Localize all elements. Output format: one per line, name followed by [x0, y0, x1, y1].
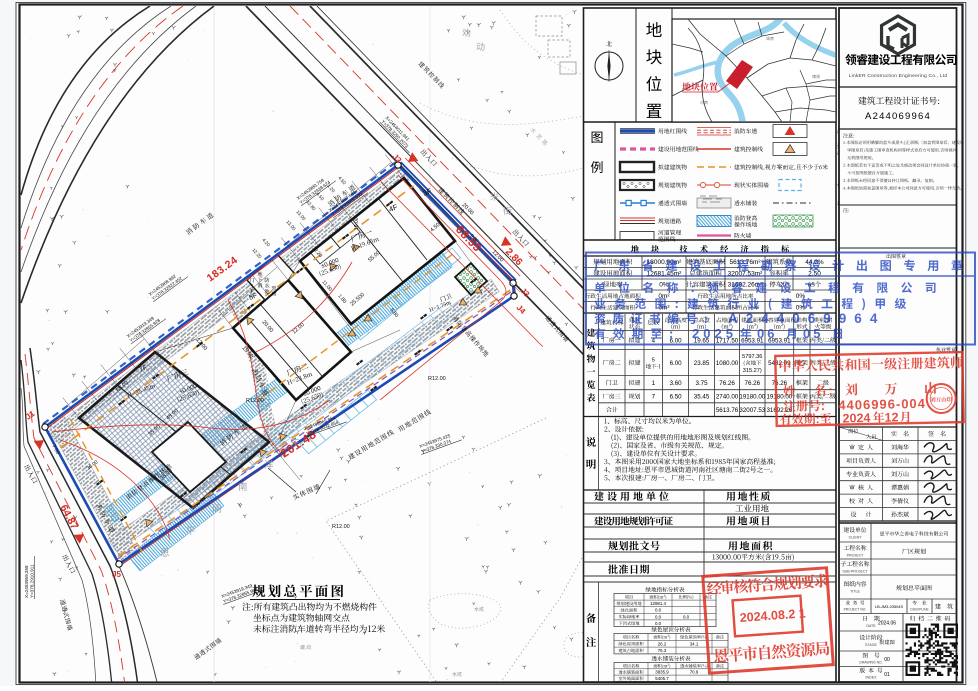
svg-text:19180.00: 19180.00	[766, 393, 792, 400]
svg-text:26.2: 26.2	[658, 641, 667, 646]
svg-text:PROJECT NO.: PROJECT NO.	[844, 608, 867, 612]
svg-text:31692.26: 31692.26	[766, 407, 792, 414]
svg-text:1080.00: 1080.00	[716, 360, 739, 367]
svg-text:6.00: 6.00	[670, 337, 683, 344]
svg-text:76.3: 76.3	[658, 648, 667, 653]
svg-text:LB-JM3-03504S: LB-JM3-03504S	[875, 604, 904, 609]
svg-text:R12.00: R12.00	[332, 524, 350, 530]
svg-text:STAGE: STAGE	[865, 643, 878, 647]
svg-text:2025: 2025	[692, 326, 737, 341]
svg-text:CLIENT: CLIENT	[849, 535, 863, 539]
svg-text:5405.7: 5405.7	[655, 676, 669, 681]
svg-text:A244069964: A244069964	[865, 111, 931, 122]
svg-text:3.60: 3.60	[670, 380, 683, 387]
svg-text:3.75: 3.75	[696, 380, 709, 387]
svg-text:70.9: 70.9	[690, 670, 699, 675]
svg-text:01: 01	[884, 672, 890, 678]
svg-text:76.26: 76.26	[745, 380, 761, 387]
svg-text:5797.36: 5797.36	[742, 354, 762, 360]
svg-text:6.00: 6.00	[670, 360, 683, 367]
svg-text:J5: J5	[112, 570, 121, 579]
svg-text:16.00: 16.00	[354, 217, 360, 230]
svg-text:TITLE: TITLE	[850, 589, 860, 593]
svg-text:X=2453959.358: X=2453959.358	[24, 565, 29, 598]
svg-text:76.26: 76.26	[719, 380, 735, 387]
svg-text:0%: 0%	[659, 282, 669, 289]
svg-text:3835.9: 3835.9	[655, 670, 669, 675]
svg-text:5613.76m²: 5613.76m²	[729, 259, 761, 266]
svg-text:0.0: 0.0	[683, 614, 690, 619]
svg-text:00: 00	[884, 657, 890, 663]
svg-text:Y=378.2910.911: Y=378.2910.911	[29, 564, 34, 598]
svg-text:5: 5	[652, 357, 655, 363]
svg-text:06: 06	[757, 326, 777, 341]
svg-text:DRAWING NO.: DRAWING NO.	[859, 661, 882, 665]
svg-text:0.0: 0.0	[655, 608, 662, 613]
svg-text:32007.53: 32007.53	[739, 407, 765, 414]
svg-text:4406996-004: 4406996-004	[838, 396, 926, 413]
svg-text:5613.76: 5613.76	[716, 407, 739, 414]
svg-text:SUB-PROJECT: SUB-PROJECT	[842, 569, 868, 573]
svg-text:R12.00: R12.00	[428, 376, 446, 382]
svg-text:05: 05	[803, 326, 823, 341]
svg-text:35.45: 35.45	[694, 393, 710, 400]
svg-text:6.50: 6.50	[670, 393, 683, 400]
svg-text:DATE: DATE	[866, 624, 876, 628]
svg-text:1: 1	[652, 380, 656, 387]
svg-text:PROJECT: PROJECT	[847, 553, 865, 557]
svg-text:0.0: 0.0	[655, 614, 662, 619]
svg-text:LinkER Construction Engineerin: LinkER Construction Engineering Co., Ltd	[849, 73, 948, 79]
svg-text:34.1: 34.1	[690, 641, 699, 646]
svg-text:315.27): 315.27)	[743, 368, 762, 374]
svg-text:12: 12	[884, 410, 898, 424]
svg-text:DISCIPLINE: DISCIPLINE	[910, 608, 929, 612]
svg-text:19180.00: 19180.00	[739, 393, 765, 400]
svg-text:2740.00: 2740.00	[716, 393, 739, 400]
svg-text:A244069964: A244069964	[728, 311, 885, 326]
svg-text:12981.4: 12981.4	[650, 601, 666, 606]
svg-text:0.0: 0.0	[655, 621, 662, 626]
svg-text:7: 7	[652, 393, 656, 400]
svg-text:2024.06: 2024.06	[878, 621, 896, 627]
svg-text:R12.00: R12.00	[246, 398, 264, 404]
svg-text:INDEX: INDEX	[866, 676, 878, 680]
svg-text:23.85: 23.85	[694, 360, 710, 367]
svg-text:2024: 2024	[842, 411, 870, 426]
